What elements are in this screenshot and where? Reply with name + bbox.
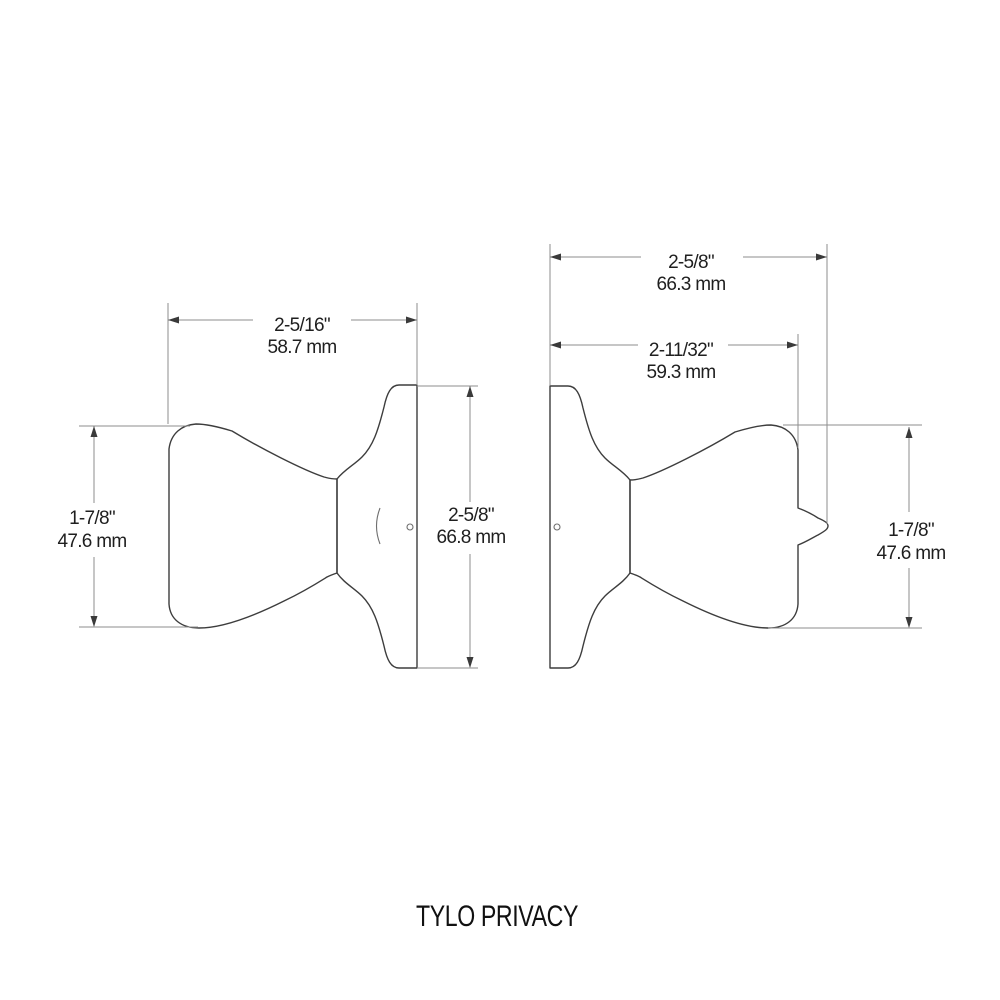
- arrowhead-up: [467, 386, 474, 397]
- arrowhead-up: [906, 427, 913, 438]
- interior-knob-projection-dimension: 2-11/32" 59.3 mm: [550, 334, 798, 448]
- dimension-label-inches: 1-7/8": [69, 508, 115, 529]
- arrowhead-down: [91, 616, 98, 627]
- interior-overall-projection-dimension: 2-5/8" 66.3 mm: [550, 244, 827, 524]
- exterior-stem-arc-detail: [377, 508, 381, 544]
- arrowhead-up: [91, 426, 98, 437]
- exterior-knob-head-outline: [169, 424, 337, 628]
- interior-screw-hole: [554, 524, 560, 530]
- interior-knob-view: 2-5/8" 66.3 mm 2-11/32" 59.3 mm 1-7/8" 4…: [550, 244, 946, 668]
- product-title: TYLO PRIVACY: [416, 900, 578, 933]
- interior-rose-plate-outline: [550, 386, 630, 668]
- arrowhead-right: [787, 342, 798, 349]
- arrowhead-left: [168, 317, 179, 324]
- dimension-label-inches: 2-11/32": [649, 340, 713, 361]
- exterior-rose-diameter-dimension: 2-5/8" 66.8 mm: [417, 386, 506, 668]
- arrowhead-right: [406, 317, 417, 324]
- interior-knob-head-outline: [630, 425, 828, 628]
- arrowhead-left: [550, 254, 561, 261]
- dimension-label-inches: 1-7/8": [888, 520, 934, 541]
- exterior-knob-view: 2-5/16" 58.7 mm 1-7/8" 47.6 mm 2-5/8" 66…: [57, 303, 505, 668]
- dimension-label-inches: 2-5/8": [448, 505, 494, 526]
- exterior-knob-diameter-dimension: 1-7/8" 47.6 mm: [57, 426, 198, 627]
- interior-knob-diameter-dimension: 1-7/8" 47.6 mm: [768, 425, 946, 628]
- arrowhead-right: [816, 254, 827, 261]
- dimension-label-mm: 66.8 mm: [436, 527, 505, 548]
- dimension-label-mm: 47.6 mm: [57, 531, 126, 552]
- dimension-label-inches: 2-5/8": [668, 252, 714, 273]
- arrowhead-down: [467, 657, 474, 668]
- dimension-label-mm: 59.3 mm: [646, 362, 715, 383]
- dimension-label-mm: 47.6 mm: [876, 543, 945, 564]
- arrowhead-left: [550, 342, 561, 349]
- dimension-label-mm: 58.7 mm: [267, 337, 336, 358]
- diagram-svg: 2-5/16" 58.7 mm 1-7/8" 47.6 mm 2-5/8" 66…: [0, 0, 1000, 1000]
- dimension-label-inches: 2-5/16": [274, 315, 330, 336]
- dimension-label-mm: 66.3 mm: [656, 274, 725, 295]
- arrowhead-down: [906, 617, 913, 628]
- exterior-screw-hole: [407, 524, 413, 530]
- exterior-projection-dimension: 2-5/16" 58.7 mm: [168, 303, 417, 424]
- dimension-diagram: 2-5/16" 58.7 mm 1-7/8" 47.6 mm 2-5/8" 66…: [0, 0, 1000, 1000]
